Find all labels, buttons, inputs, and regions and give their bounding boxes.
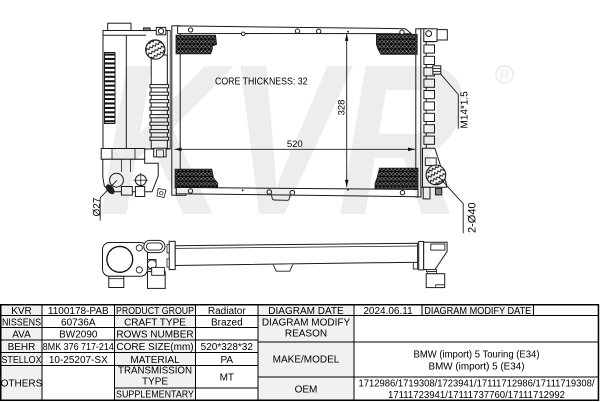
svg-text:10-25207-SX: 10-25207-SX	[49, 355, 108, 366]
svg-text:NISSENS: NISSENS	[2, 317, 41, 328]
svg-text:PRODUCT GROUP: PRODUCT GROUP	[116, 306, 194, 317]
svg-text:DIAGRAM DATE: DIAGRAM DATE	[268, 306, 344, 317]
svg-text:AVA: AVA	[12, 330, 31, 341]
svg-text:2024.06.11: 2024.06.11	[363, 306, 413, 317]
svg-text:1712986/1719308/1723941/171117: 1712986/1719308/1723941/17111712986/1711…	[359, 378, 595, 390]
svg-text:DIAGRAM MODIFY DATE: DIAGRAM MODIFY DATE	[424, 306, 531, 317]
svg-text:STELLOX: STELLOX	[2, 355, 42, 366]
svg-text:BMW (import) 5 Touring (E34): BMW (import) 5 Touring (E34)	[414, 349, 540, 361]
svg-text:CRAFT TYPE: CRAFT TYPE	[124, 317, 186, 328]
svg-text:DIAGRAM MODIFY: DIAGRAM MODIFY	[262, 318, 351, 329]
svg-text:CORE SIZE(mm): CORE SIZE(mm)	[116, 342, 193, 353]
svg-text:BW2090: BW2090	[59, 330, 98, 341]
svg-text:TYPE: TYPE	[142, 377, 168, 388]
svg-text:TRANSMISSION: TRANSMISSION	[118, 366, 192, 377]
svg-text:17111723941/17111737760/171117: 17111723941/17111737760/17111712992	[388, 389, 565, 401]
svg-text:520*328*32: 520*328*32	[201, 342, 254, 353]
svg-text:8MK 376 717-214: 8MK 376 717-214	[43, 342, 114, 353]
svg-text:OEM: OEM	[295, 384, 318, 395]
svg-text:OTHERS: OTHERS	[1, 378, 43, 389]
svg-text:MT: MT	[220, 372, 234, 383]
svg-text:BEHR: BEHR	[8, 342, 36, 353]
svg-text:R: R	[500, 67, 509, 82]
svg-text:SUPPLEMENTARY: SUPPLEMENTARY	[116, 390, 194, 401]
svg-text:Radiator: Radiator	[208, 306, 246, 317]
svg-text:KVR: KVR	[82, 19, 486, 260]
svg-text:PA: PA	[220, 355, 233, 366]
svg-text:1100178-PAB: 1100178-PAB	[48, 306, 109, 317]
svg-text:REASON: REASON	[285, 329, 327, 340]
svg-text:BMW (import) 5 (E34): BMW (import) 5 (E34)	[429, 360, 525, 372]
svg-text:MAKE/MODEL: MAKE/MODEL	[273, 355, 340, 366]
svg-text:Brazed: Brazed	[211, 317, 243, 328]
svg-text:2-Ø40: 2-Ø40	[467, 202, 479, 233]
svg-text:MATERIAL: MATERIAL	[130, 355, 180, 366]
svg-text:ROWS NUMBER: ROWS NUMBER	[116, 330, 193, 341]
svg-text:60736A: 60736A	[61, 317, 96, 328]
svg-text:KVR: KVR	[11, 306, 32, 317]
